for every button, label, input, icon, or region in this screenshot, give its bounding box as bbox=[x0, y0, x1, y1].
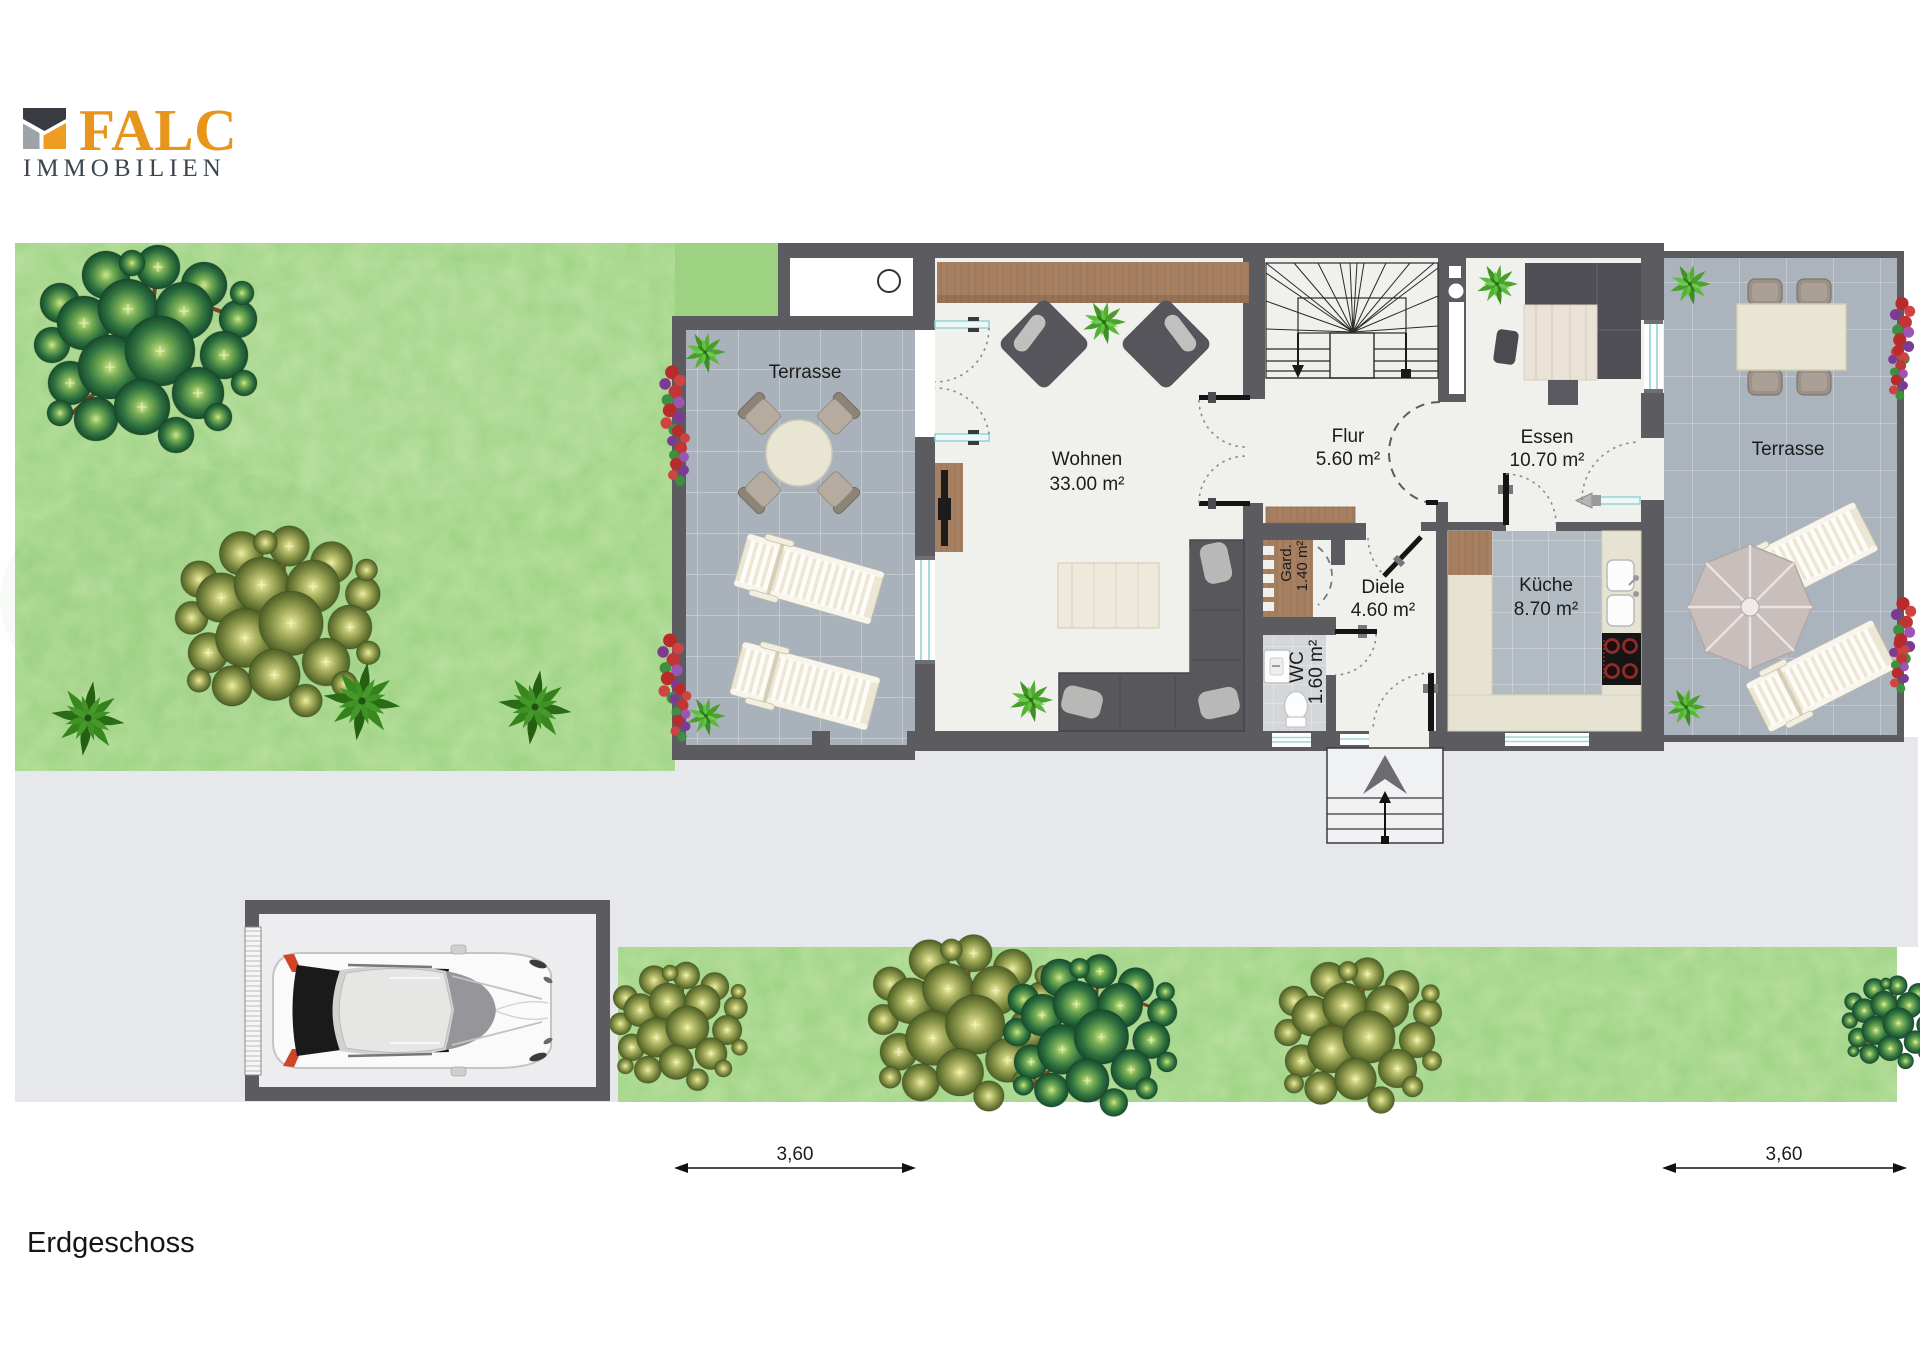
svg-text:Gard.: Gard. bbox=[1278, 544, 1295, 582]
svg-text:5.60 m²: 5.60 m² bbox=[1316, 449, 1380, 470]
svg-text:IMMOBILIEN: IMMOBILIEN bbox=[23, 155, 226, 182]
svg-text:4.60 m²: 4.60 m² bbox=[1351, 600, 1415, 621]
svg-text:3,60: 3,60 bbox=[1766, 1144, 1803, 1165]
svg-text:Flur: Flur bbox=[1332, 426, 1365, 447]
svg-text:Diele: Diele bbox=[1361, 577, 1404, 598]
svg-text:3,60: 3,60 bbox=[777, 1144, 814, 1165]
svg-text:8.70 m²: 8.70 m² bbox=[1514, 599, 1578, 620]
svg-text:Küche: Küche bbox=[1519, 575, 1573, 596]
svg-text:33.00 m²: 33.00 m² bbox=[1050, 474, 1125, 495]
svg-text:1.40 m²: 1.40 m² bbox=[1294, 541, 1311, 592]
svg-text:Erdgeschoss: Erdgeschoss bbox=[27, 1227, 195, 1259]
svg-text:FALC: FALC bbox=[79, 97, 237, 163]
svg-text:Essen: Essen bbox=[1521, 427, 1574, 448]
svg-text:1.60 m²: 1.60 m² bbox=[1306, 640, 1327, 704]
svg-text:WC: WC bbox=[1287, 651, 1308, 683]
svg-text:Wohnen: Wohnen bbox=[1052, 449, 1122, 470]
svg-text:10.70 m²: 10.70 m² bbox=[1510, 450, 1585, 471]
svg-text:Terrasse: Terrasse bbox=[769, 362, 842, 383]
svg-text:Terrasse: Terrasse bbox=[1752, 439, 1825, 460]
